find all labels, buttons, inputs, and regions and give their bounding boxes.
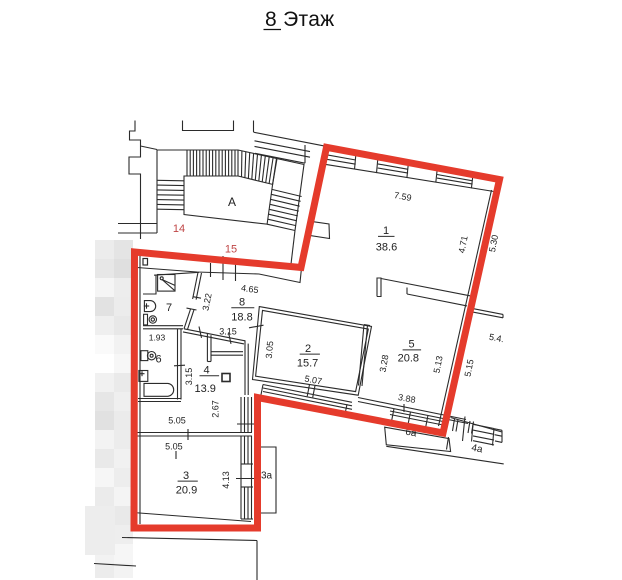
svg-text:4: 4 xyxy=(203,365,209,377)
svg-text:38.6: 38.6 xyxy=(376,241,397,253)
svg-text:8 Этаж: 8 Этаж xyxy=(265,8,335,31)
svg-text:1: 1 xyxy=(383,225,389,237)
svg-text:7: 7 xyxy=(166,302,172,314)
svg-text:6: 6 xyxy=(155,354,161,366)
svg-text:13.9: 13.9 xyxy=(194,383,215,395)
svg-text:20.8: 20.8 xyxy=(398,353,419,365)
svg-text:3.15: 3.15 xyxy=(184,368,194,386)
svg-text:8: 8 xyxy=(239,297,245,309)
svg-text:14: 14 xyxy=(173,223,185,235)
svg-text:3a: 3a xyxy=(261,471,273,482)
svg-text:A: A xyxy=(228,195,236,209)
svg-text:3.15: 3.15 xyxy=(219,327,237,337)
svg-text:3: 3 xyxy=(183,470,189,482)
svg-text:5.05: 5.05 xyxy=(165,442,183,452)
svg-text:20.9: 20.9 xyxy=(176,484,197,496)
svg-text:5: 5 xyxy=(408,339,414,351)
svg-text:5.05: 5.05 xyxy=(168,416,186,426)
svg-text:2: 2 xyxy=(305,343,311,355)
svg-text:2.67: 2.67 xyxy=(211,400,221,418)
svg-text:15: 15 xyxy=(225,244,237,256)
svg-text:3.05: 3.05 xyxy=(264,341,275,359)
svg-text:1.93: 1.93 xyxy=(149,333,166,343)
svg-text:18.8: 18.8 xyxy=(231,312,252,324)
svg-text:4.13: 4.13 xyxy=(221,471,231,489)
svg-text:15.7: 15.7 xyxy=(297,358,318,370)
